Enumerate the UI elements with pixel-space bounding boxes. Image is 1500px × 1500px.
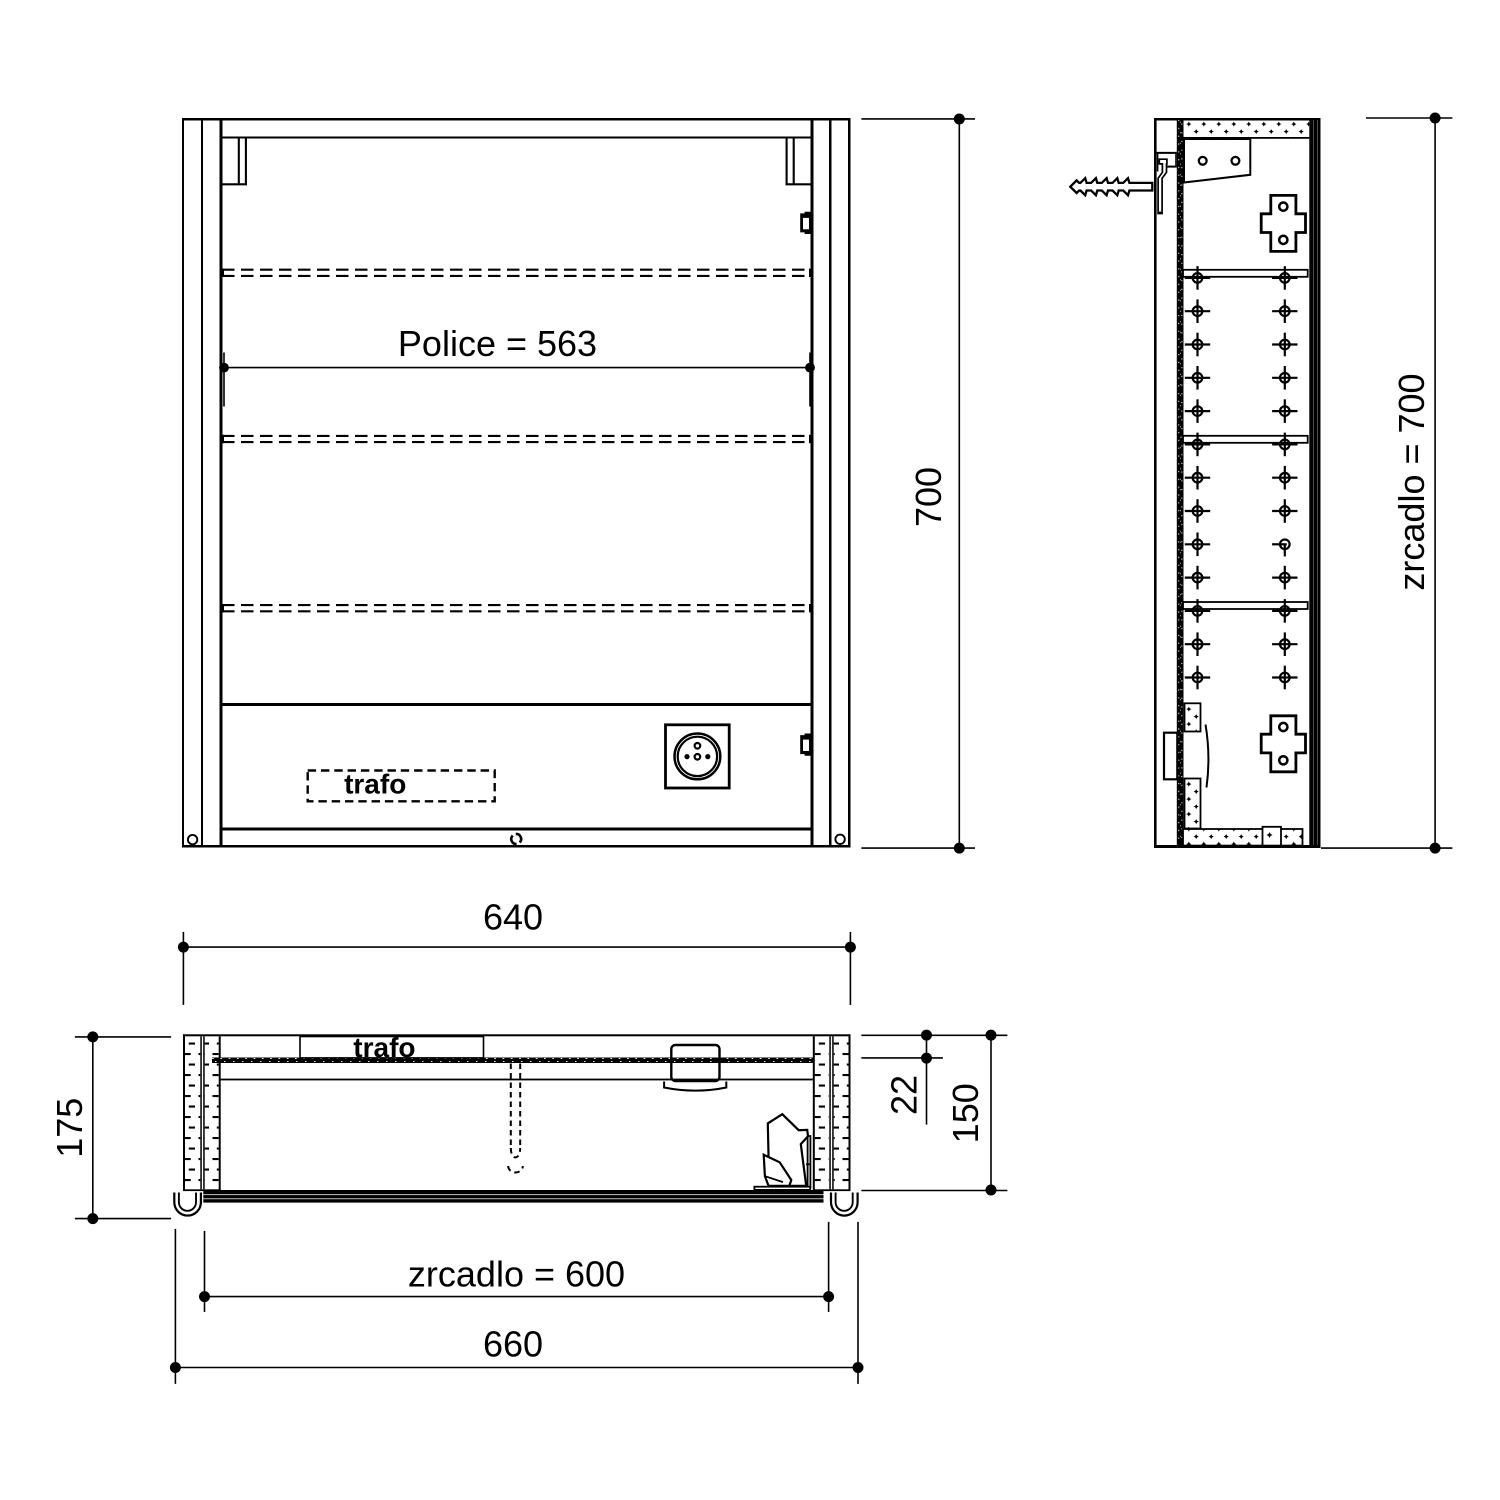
svg-text:trafo: trafo (344, 769, 406, 800)
svg-text:zrcadlo = 600: zrcadlo = 600 (408, 1254, 625, 1295)
svg-text:175: 175 (49, 1098, 90, 1158)
svg-text:trafo: trafo (353, 1032, 415, 1063)
svg-text:22: 22 (884, 1075, 925, 1115)
svg-text:640: 640 (483, 897, 543, 938)
svg-text:150: 150 (945, 1083, 986, 1143)
svg-text:Police = 563: Police = 563 (398, 323, 597, 364)
svg-text:700: 700 (908, 467, 949, 527)
svg-text:660: 660 (483, 1323, 543, 1364)
svg-text:zrcadlo = 700: zrcadlo = 700 (1391, 373, 1432, 590)
